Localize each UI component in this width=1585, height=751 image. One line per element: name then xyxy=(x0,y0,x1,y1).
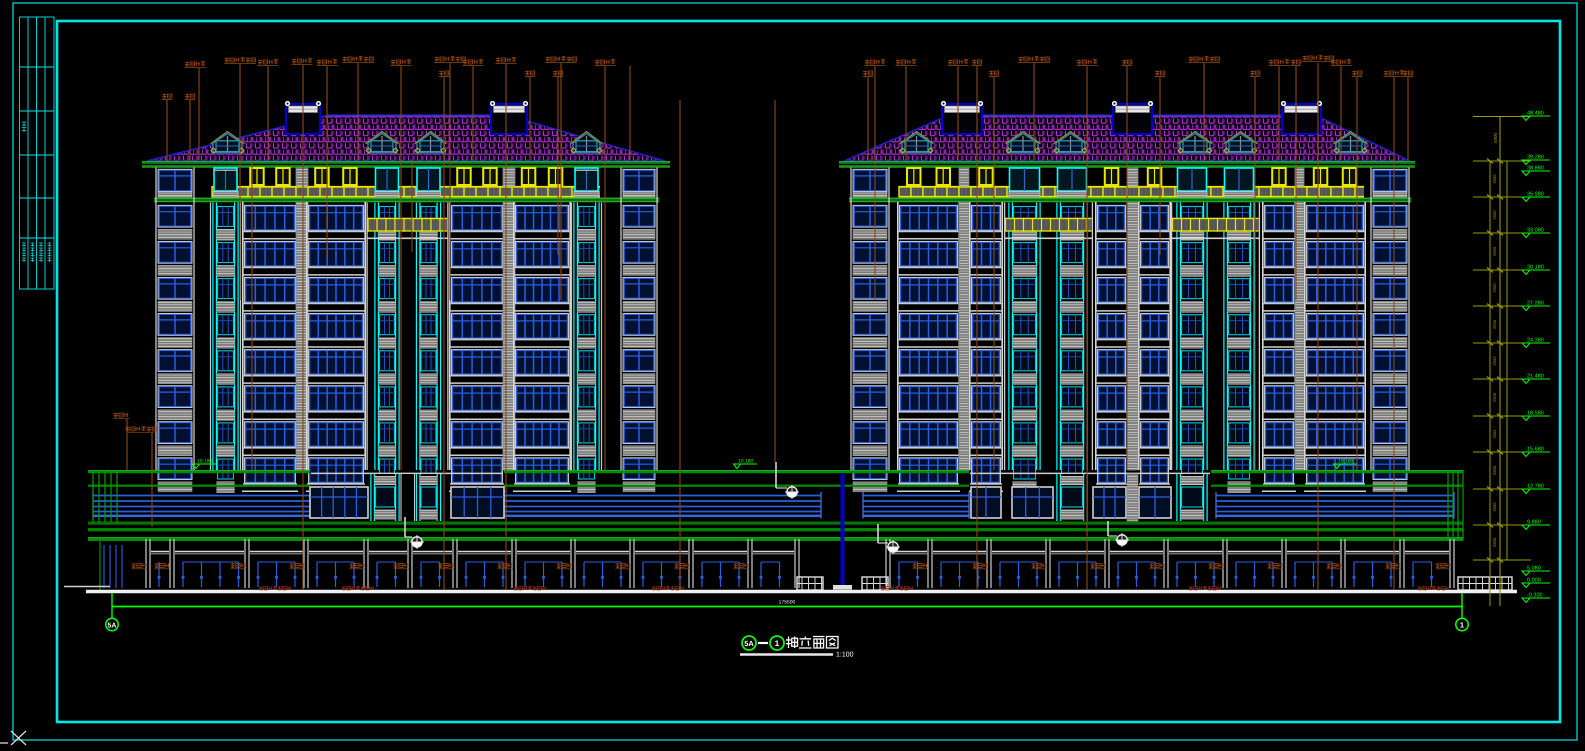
svg-text:35.980: 35.980 xyxy=(1527,192,1544,198)
svg-text:2900: 2900 xyxy=(1492,283,1497,293)
svg-text:2900: 2900 xyxy=(1492,174,1497,184)
svg-text:24.380: 24.380 xyxy=(1527,338,1544,344)
svg-text:48.480: 48.480 xyxy=(1527,111,1544,117)
svg-text:10.180: 10.180 xyxy=(738,459,754,465)
svg-text:39.280: 39.280 xyxy=(1527,155,1544,161)
svg-text:5A: 5A xyxy=(744,639,754,648)
svg-text:2900: 2900 xyxy=(1492,502,1497,512)
svg-text:33.080: 33.080 xyxy=(1527,228,1544,234)
svg-text:2900: 2900 xyxy=(1492,429,1497,439)
svg-text:175500: 175500 xyxy=(779,600,796,606)
svg-text:2900: 2900 xyxy=(1492,210,1497,220)
svg-text:5A: 5A xyxy=(108,622,117,629)
svg-text:38.880: 38.880 xyxy=(1527,166,1544,172)
svg-text:5800: 5800 xyxy=(1493,132,1498,143)
svg-text:2900: 2900 xyxy=(1492,356,1497,366)
svg-text:9.880: 9.880 xyxy=(1527,520,1541,526)
svg-text:15.680: 15.680 xyxy=(1527,447,1544,453)
svg-text:18.580: 18.580 xyxy=(1527,411,1544,417)
svg-text:0.000: 0.000 xyxy=(1527,578,1541,584)
svg-text:1: 1 xyxy=(1460,620,1464,629)
svg-text:2900: 2900 xyxy=(1492,465,1497,475)
svg-text:2900: 2900 xyxy=(1492,392,1497,402)
svg-text:2900: 2900 xyxy=(1492,246,1497,256)
svg-text:10.180: 10.180 xyxy=(197,459,213,465)
svg-text:2900: 2900 xyxy=(1492,319,1497,329)
svg-text:12.780: 12.780 xyxy=(1527,484,1544,490)
svg-text:27.280: 27.280 xyxy=(1527,301,1544,307)
svg-text:1:100: 1:100 xyxy=(836,652,854,659)
svg-text:2900: 2900 xyxy=(1492,537,1497,547)
svg-text:21.480: 21.480 xyxy=(1527,374,1544,380)
svg-text:-0.300: -0.300 xyxy=(1527,593,1543,599)
svg-text:30.180: 30.180 xyxy=(1527,265,1544,271)
svg-text:10.180: 10.180 xyxy=(1338,459,1354,465)
svg-text:5.080: 5.080 xyxy=(1527,566,1541,572)
svg-text:1: 1 xyxy=(775,639,780,648)
